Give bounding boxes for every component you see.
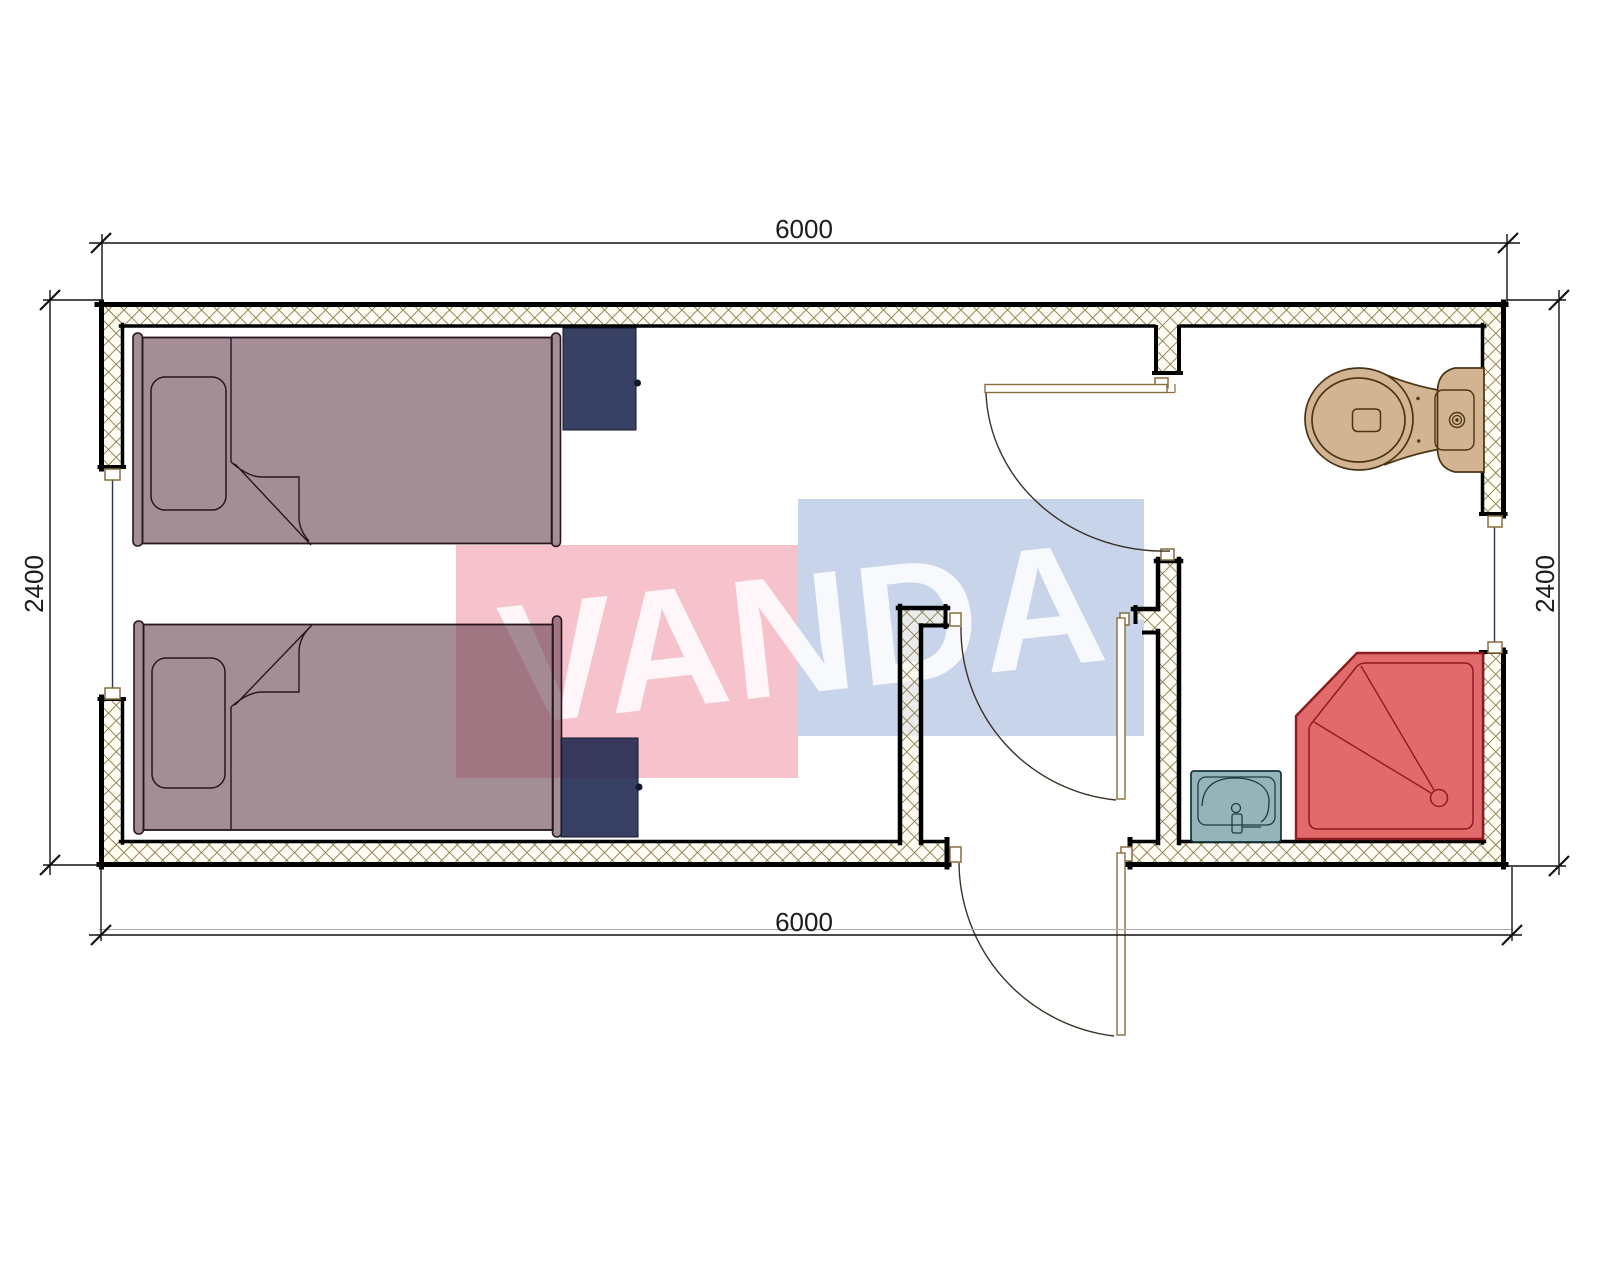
svg-text:2400: 2400	[19, 555, 49, 613]
svg-text:6000: 6000	[775, 214, 833, 244]
svg-text:6000: 6000	[775, 907, 833, 937]
svg-text:2400: 2400	[1530, 555, 1560, 613]
